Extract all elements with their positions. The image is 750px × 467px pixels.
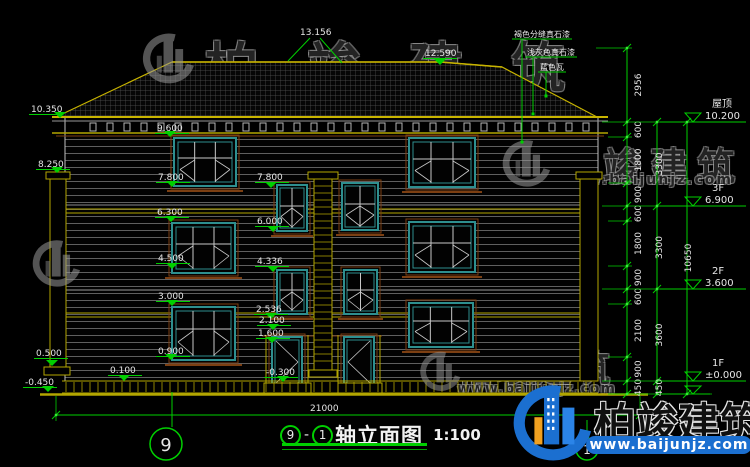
dimension-chain: 330033003600450: [653, 118, 665, 398]
marker-triangle: [267, 266, 279, 272]
material-label: 褐色分缝真石漆: [514, 29, 570, 39]
floor-elevation: ±0.000: [705, 370, 742, 381]
elevation-marker: 12.590: [423, 49, 457, 65]
marker-triangle: [46, 360, 58, 366]
material-label: 蓝色瓦: [540, 62, 564, 72]
marker-triangle: [118, 375, 130, 381]
chain-dim-value: 2100: [634, 319, 644, 342]
marker-triangle: [266, 337, 278, 343]
elevation-value: 12.590: [425, 49, 457, 59]
material-callout: 蓝色瓦: [538, 62, 566, 98]
chain-dim-value: 900: [634, 269, 644, 286]
floor-elevation: 6.900: [705, 195, 734, 206]
elevation-value: 0.500: [36, 349, 62, 359]
chain-dim-value: 3300: [655, 236, 665, 259]
floor-level: 2F3.600: [660, 266, 746, 289]
elevation-marker: 6.000: [255, 217, 289, 232]
marker-triangle: [165, 216, 177, 222]
chain-dim-value: 600: [634, 205, 644, 222]
chain-dim-value: 600: [634, 121, 644, 138]
elevation-marker: -0.300: [264, 368, 298, 382]
floor-elevation: 3.600: [705, 278, 734, 289]
marker-triangle: [166, 263, 178, 269]
dimension-chain: 10650: [683, 118, 694, 398]
elevation-value: 4.500: [158, 254, 184, 264]
elevation-marker: 0.100: [108, 366, 142, 381]
marker-triangle: [277, 376, 289, 382]
dimension-chains: 2956600180090060018009006002100900450330…: [596, 44, 746, 398]
material-callout: 浅灰色真石漆: [525, 47, 577, 116]
chain-dim-value: 600: [634, 288, 644, 305]
chain-dim-value: 900: [634, 360, 644, 377]
peak-leader: [288, 38, 310, 61]
marker-triangle: [434, 59, 446, 65]
elevation-value: 4.336: [257, 257, 283, 267]
elevation-marker: 8.250: [36, 160, 70, 173]
marker-triangle: [42, 386, 54, 392]
elevation-markers: 13.15612.59010.3509.6008.2507.8007.8006.…: [23, 28, 457, 392]
elevation-value: 7.800: [257, 173, 283, 183]
elevation-value: 6.000: [257, 217, 283, 227]
title-scale: 1:100: [433, 426, 481, 444]
elevation-marker: 3.000: [156, 292, 190, 306]
marker-triangle: [265, 182, 277, 188]
material-callout: 褐色分缝真石漆: [512, 29, 572, 144]
elevation-marker: 2.100: [257, 316, 291, 330]
chain-dim-value: 900: [634, 186, 644, 203]
floor-name: 1F: [712, 358, 724, 369]
floor-level: 1F±0.000: [660, 358, 746, 381]
brand-url: www.baijunjz.com: [590, 437, 749, 453]
elevation-marker: -0.450: [23, 378, 57, 392]
floor-elevation: 10.200: [705, 111, 740, 122]
brand-url-bar: www.baijunjz.com: [586, 436, 750, 454]
axis-number-9: 9: [160, 435, 171, 456]
elevation-marker: 9.600: [155, 124, 189, 137]
floor-levels: 屋顶10.2003F6.9002F3.6001F±0.000: [660, 98, 746, 394]
elevation-marker: 4.500: [156, 254, 190, 269]
floor-name: 2F: [712, 266, 724, 277]
chain-dim-value: 3600: [655, 323, 665, 346]
elevation-marker: 0.900: [156, 347, 190, 360]
cad-elevation-screenshot: 柏竣建筑 www.baijunjz.com 柏竣建筑 www.baijunjz.…: [0, 0, 750, 467]
chain-dim-value: 1800: [634, 232, 644, 255]
brand-logo-icon: [512, 382, 592, 462]
material-label: 浅灰色真石漆: [527, 47, 575, 57]
title-underline-thick: [282, 443, 427, 446]
marker-triangle: [166, 181, 178, 187]
elevation-marker: 7.800: [156, 173, 190, 187]
marker-triangle: [267, 226, 279, 232]
elevation-marker: 10.350: [29, 105, 66, 118]
level-triangle: [685, 113, 701, 122]
elevation-marker: 13.156: [288, 28, 342, 63]
elevation-marker: 7.800: [255, 173, 289, 188]
floor-level: 屋顶10.200: [660, 98, 746, 122]
chain-dim-value: 1800: [634, 148, 644, 171]
callout-dot: [545, 95, 548, 98]
elevation-marker: 6.300: [155, 208, 189, 222]
elevation-marker: 4.336: [255, 257, 289, 272]
floor-name: 3F: [712, 183, 724, 194]
chain-dim-value: 10650: [684, 243, 694, 272]
elevation-marker: 0.500: [34, 349, 68, 366]
total-width-value: 21000: [310, 404, 339, 414]
elevation-value: 13.156: [300, 28, 332, 38]
chain-dim-value: 3300: [655, 152, 665, 175]
floor-level: 3F6.900: [660, 183, 746, 206]
material-callouts: 褐色分缝真石漆浅灰色真石漆蓝色瓦: [512, 29, 577, 144]
elevation-marker: 1.600: [256, 329, 290, 343]
callout-dot: [521, 141, 524, 144]
elevation-value: 0.100: [110, 366, 136, 376]
callout-dot: [532, 113, 535, 116]
floor-name: 屋顶: [712, 98, 732, 110]
title-dash: -: [304, 427, 309, 443]
title-underline-thin: [282, 449, 427, 450]
chain-dim-value: 2956: [634, 73, 644, 96]
marker-triangle: [166, 300, 178, 306]
peak-leader: [320, 38, 342, 63]
